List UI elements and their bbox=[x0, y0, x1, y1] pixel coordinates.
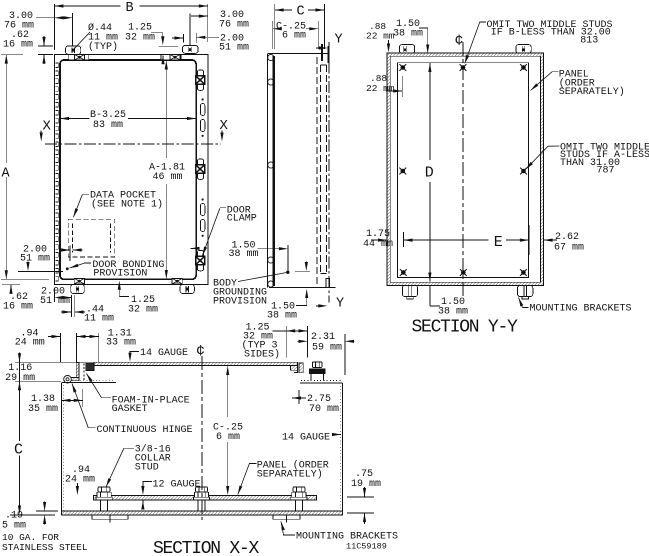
svg-text:67 mm: 67 mm bbox=[554, 243, 584, 254]
svg-text:813: 813 bbox=[580, 35, 598, 46]
svg-text:SEPARATELY): SEPARATELY) bbox=[559, 86, 625, 98]
svg-text:X: X bbox=[43, 119, 52, 135]
svg-text:CONTINUOUS HINGE: CONTINUOUS HINGE bbox=[97, 425, 193, 436]
svg-text:B: B bbox=[126, 1, 134, 16]
svg-text:35 mm: 35 mm bbox=[28, 404, 58, 415]
svg-text:16 mm: 16 mm bbox=[3, 302, 33, 313]
svg-text:¢: ¢ bbox=[196, 343, 205, 360]
svg-text:C: C bbox=[14, 442, 23, 459]
svg-text:SECTION Y-Y: SECTION Y-Y bbox=[412, 318, 519, 338]
svg-text:5 mm: 5 mm bbox=[2, 521, 26, 532]
svg-text:12 GAUGE: 12 GAUGE bbox=[153, 480, 201, 491]
svg-text:X: X bbox=[220, 118, 229, 134]
svg-text:11 mm: 11 mm bbox=[84, 314, 114, 325]
svg-text:70 mm: 70 mm bbox=[309, 404, 339, 415]
svg-text:51 mm: 51 mm bbox=[20, 254, 50, 265]
svg-text:14 GAUGE: 14 GAUGE bbox=[140, 348, 188, 359]
svg-text:STUD: STUD bbox=[135, 462, 159, 473]
svg-text:51 mm: 51 mm bbox=[219, 43, 249, 54]
svg-text:(TYP): (TYP) bbox=[88, 41, 118, 53]
svg-text:2.31: 2.31 bbox=[311, 332, 335, 343]
svg-text:Y: Y bbox=[336, 297, 344, 312]
svg-text:59 mm: 59 mm bbox=[312, 343, 342, 354]
svg-text:38 mm: 38 mm bbox=[229, 249, 259, 260]
svg-text:14 GAUGE: 14 GAUGE bbox=[282, 433, 330, 444]
svg-text:76 mm: 76 mm bbox=[219, 20, 249, 31]
svg-text:(SEE NOTE 1): (SEE NOTE 1) bbox=[91, 199, 163, 211]
svg-text:SECTION X-X: SECTION X-X bbox=[153, 539, 260, 556]
svg-text:CLAMP: CLAMP bbox=[227, 214, 257, 225]
svg-text:24 mm: 24 mm bbox=[65, 475, 95, 486]
svg-text:24 mm: 24 mm bbox=[15, 338, 45, 349]
svg-text:MOUNTING BRACKETS: MOUNTING BRACKETS bbox=[530, 304, 632, 315]
svg-text:2.62: 2.62 bbox=[555, 232, 579, 243]
svg-text:6 mm: 6 mm bbox=[282, 31, 306, 42]
svg-text:33 mm: 33 mm bbox=[106, 338, 136, 349]
svg-text:16 mm: 16 mm bbox=[3, 40, 33, 51]
svg-text:PROVISION: PROVISION bbox=[93, 269, 147, 280]
svg-text:Y: Y bbox=[335, 33, 343, 48]
svg-text:38 mm: 38 mm bbox=[438, 307, 468, 318]
svg-text:32 mm: 32 mm bbox=[128, 305, 158, 316]
svg-text:38 mm: 38 mm bbox=[393, 29, 423, 40]
svg-text:STAINLESS STEEL: STAINLESS STEEL bbox=[2, 542, 88, 553]
svg-text:¢: ¢ bbox=[455, 33, 464, 50]
svg-text:46 mm: 46 mm bbox=[153, 172, 183, 183]
svg-text:A: A bbox=[2, 167, 11, 182]
svg-text:29 mm: 29 mm bbox=[5, 373, 35, 384]
svg-text:38 mm: 38 mm bbox=[267, 311, 297, 322]
svg-text:11C59189: 11C59189 bbox=[346, 542, 387, 552]
svg-text:SEPARATELY): SEPARATELY) bbox=[257, 469, 323, 481]
svg-text:SIDES): SIDES) bbox=[244, 349, 280, 361]
svg-text:787: 787 bbox=[597, 166, 615, 177]
svg-text:83 mm: 83 mm bbox=[93, 120, 123, 131]
svg-text:GASKET: GASKET bbox=[112, 404, 148, 415]
svg-text:E: E bbox=[494, 234, 503, 251]
svg-text:6 mm: 6 mm bbox=[216, 432, 240, 443]
svg-text:PROVISION: PROVISION bbox=[213, 297, 267, 308]
svg-text:22 mm: 22 mm bbox=[366, 83, 395, 94]
svg-text:22 mm: 22 mm bbox=[366, 31, 395, 42]
svg-text:D: D bbox=[425, 165, 434, 182]
svg-text:C: C bbox=[297, 5, 305, 20]
svg-text:32 mm: 32 mm bbox=[125, 33, 155, 44]
